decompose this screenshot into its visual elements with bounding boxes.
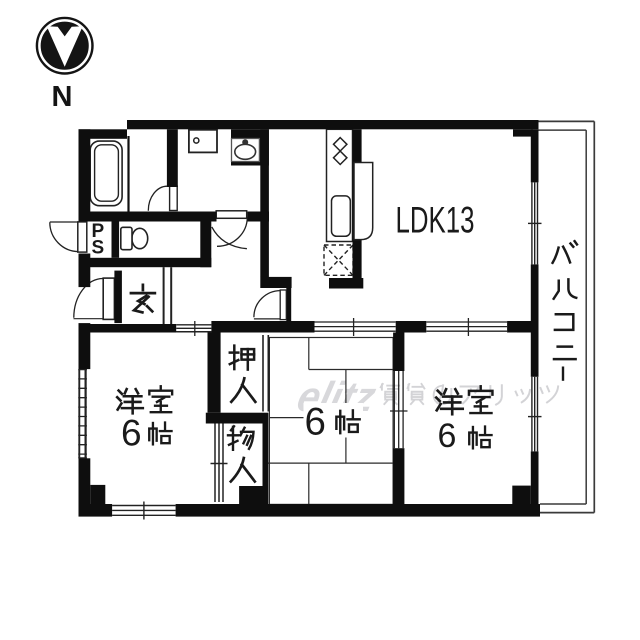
svg-text:6: 6 xyxy=(438,417,457,455)
svg-text:N: N xyxy=(52,81,73,113)
svg-text:S: S xyxy=(92,237,105,258)
svg-text:LDK13: LDK13 xyxy=(396,200,475,241)
svg-text:6: 6 xyxy=(305,401,326,444)
svg-text:6: 6 xyxy=(121,413,142,454)
